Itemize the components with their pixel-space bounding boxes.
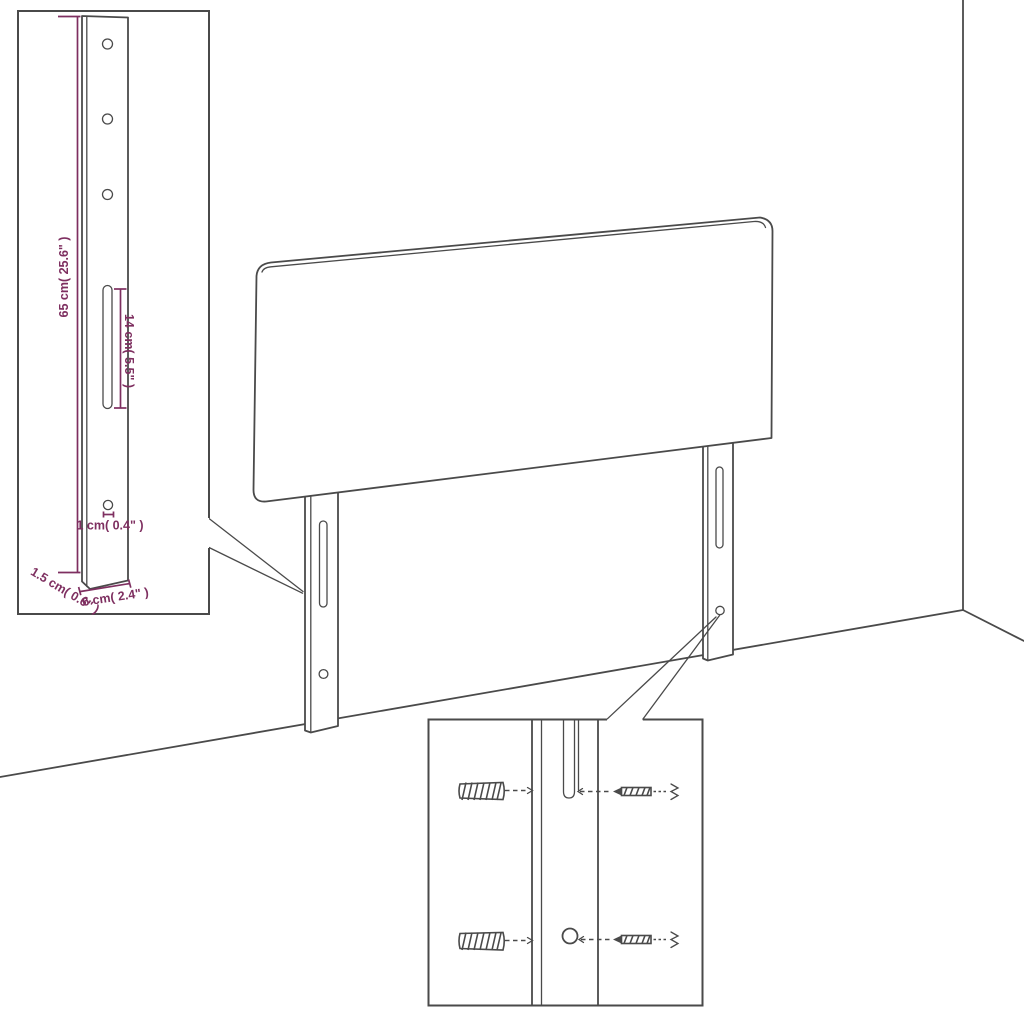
leg-right-hole bbox=[716, 606, 724, 614]
callout-right-line-2 bbox=[643, 616, 720, 720]
headboard-panel bbox=[254, 218, 773, 502]
diagram-canvas: 65 cm( 25.6" ) 14 cm( 5.5" ) 1 cm( 0.4" … bbox=[0, 0, 1024, 1024]
bracket-small-hole bbox=[103, 500, 112, 509]
headboard-leg-left bbox=[305, 478, 338, 733]
dim-height-label: 65 cm( 25.6" ) bbox=[57, 237, 71, 318]
leg-left-hole bbox=[319, 670, 328, 679]
bracket-slot bbox=[103, 286, 112, 409]
leg-right-slot bbox=[716, 467, 723, 548]
product-dimension-diagram: 65 cm( 25.6" ) 14 cm( 5.5" ) 1 cm( 0.4" … bbox=[0, 0, 1024, 1024]
headboard-outline bbox=[254, 218, 773, 502]
bracket-hole-lower bbox=[103, 190, 113, 200]
callout-wedge-left bbox=[209, 519, 303, 594]
bracket-detail-inset: 65 cm( 25.6" ) 14 cm( 5.5" ) 1 cm( 0.4" … bbox=[18, 11, 209, 617]
leg-left-slot bbox=[320, 521, 328, 607]
dim-slot-label: 14 cm( 5.5" ) bbox=[122, 314, 136, 388]
strip-hole bbox=[563, 929, 578, 944]
bracket-hole-middle bbox=[103, 114, 113, 124]
mounting-inset-background bbox=[429, 720, 703, 1006]
mounting-detail-inset bbox=[429, 720, 703, 1006]
floor-line-right bbox=[963, 610, 1024, 641]
bracket-hole-top bbox=[103, 39, 113, 49]
dim-hole-label: 1 cm( 0.4" ) bbox=[76, 519, 143, 533]
